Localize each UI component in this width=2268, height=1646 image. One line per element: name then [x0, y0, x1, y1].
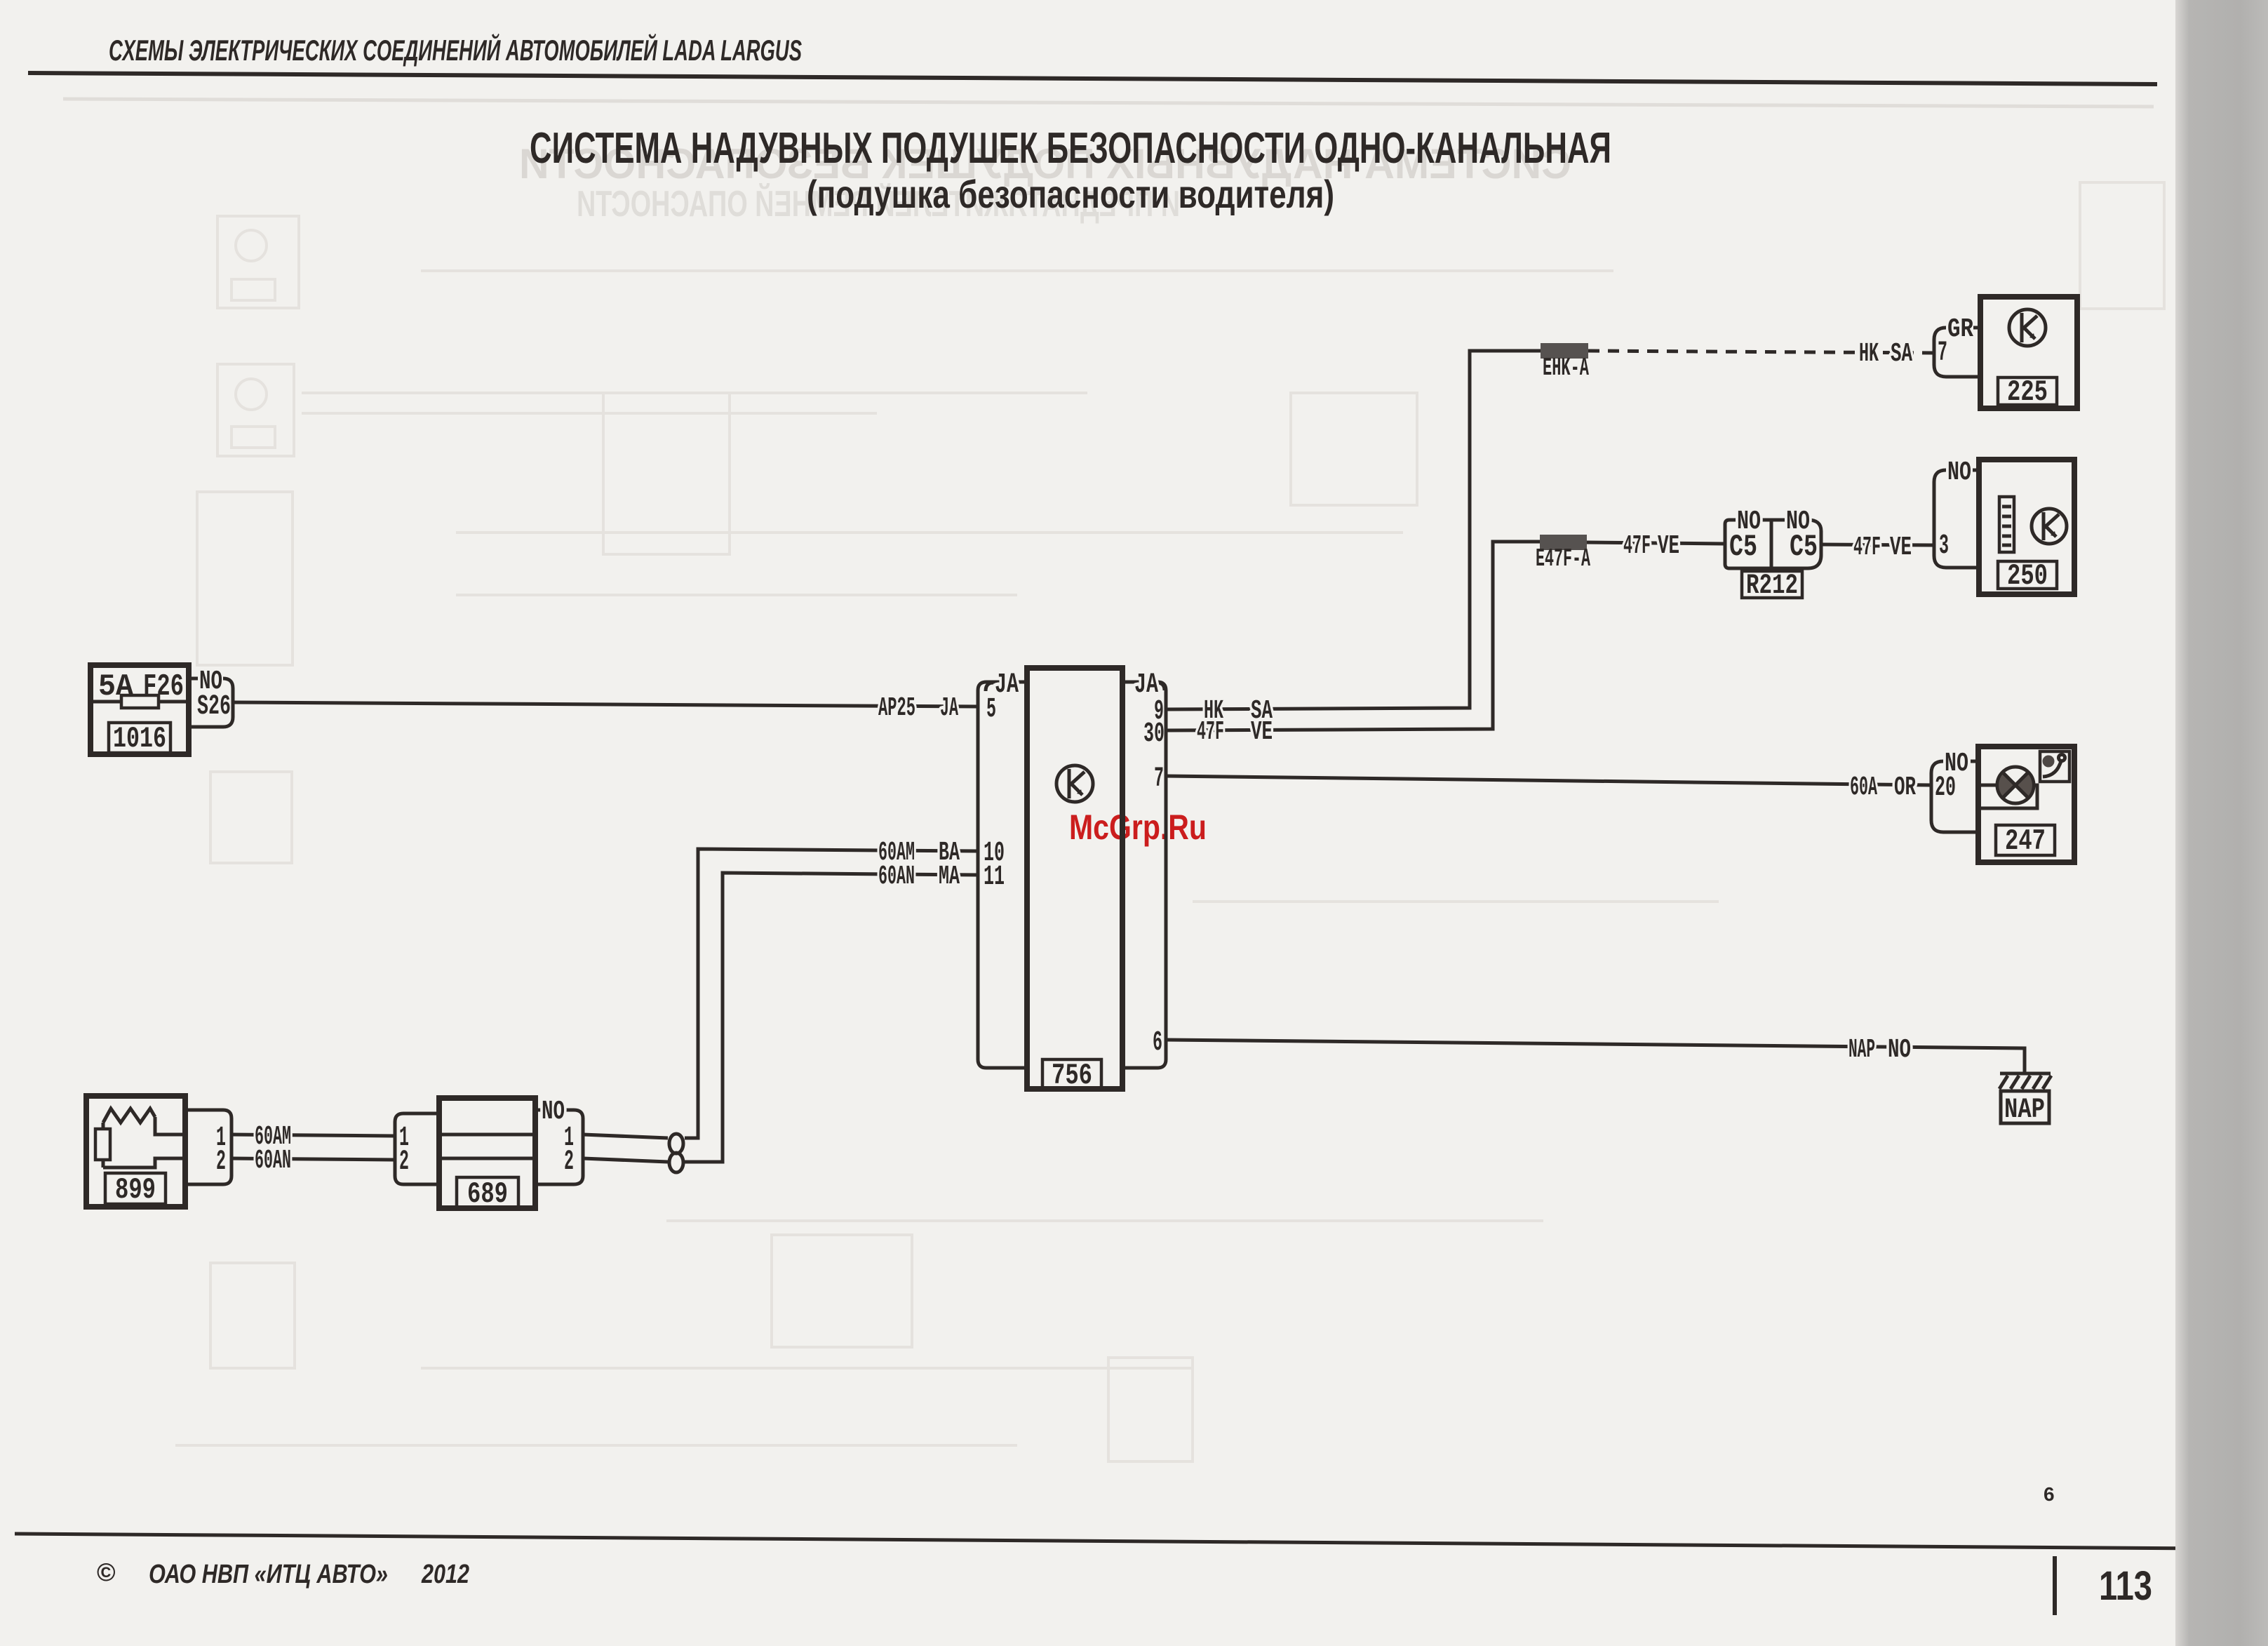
- svg-text:7: 7: [1938, 337, 1947, 369]
- svg-text:JA: JA: [995, 669, 1019, 701]
- svg-text:11: 11: [984, 862, 1005, 893]
- svg-text:S26: S26: [197, 691, 231, 723]
- svg-text:6: 6: [2044, 1483, 2055, 1505]
- svg-text:47F: 47F: [1853, 533, 1881, 563]
- svg-text:MA: MA: [939, 862, 960, 892]
- svg-text:E47F-A: E47F-A: [1536, 544, 1590, 573]
- svg-text:VE: VE: [1251, 717, 1273, 747]
- svg-text:3: 3: [1939, 530, 1949, 562]
- svg-text:(подушка безопасности водителя: (подушка безопасности водителя): [807, 172, 1334, 216]
- svg-text:McGrp.Ru: McGrp.Ru: [1069, 808, 1207, 847]
- svg-text:7: 7: [1154, 763, 1164, 795]
- svg-text:NO: NO: [1947, 457, 1971, 488]
- svg-text:JA: JA: [940, 693, 958, 723]
- svg-text:EHK-A: EHK-A: [1543, 354, 1589, 382]
- svg-text:VE: VE: [1658, 531, 1679, 561]
- svg-text:60A: 60A: [1850, 772, 1877, 803]
- svg-text:СХЕМЫ ЭЛЕКТРИЧЕСКИХ СОЕДИНЕНИЙ: СХЕМЫ ЭЛЕКТРИЧЕСКИХ СОЕДИНЕНИЙ АВТОМОБИЛ…: [109, 32, 802, 67]
- svg-text:SA: SA: [1891, 339, 1912, 369]
- svg-text:GR: GR: [1947, 314, 1973, 344]
- svg-text:OR: OR: [1894, 772, 1916, 803]
- svg-text:R212: R212: [1746, 570, 1798, 602]
- svg-text:47F: 47F: [1623, 531, 1651, 561]
- svg-text:NO: NO: [1888, 1035, 1911, 1065]
- svg-text:5A: 5A: [98, 669, 134, 704]
- svg-text:VE: VE: [1890, 533, 1912, 563]
- svg-text:СИСТЕМА НАДУВНЫХ ПОДУШЕК БЕЗОП: СИСТЕМА НАДУВНЫХ ПОДУШЕК БЕЗОПАСНОСТИ ОД…: [530, 124, 1611, 173]
- svg-text:C5: C5: [1790, 530, 1818, 565]
- svg-text:©: ©: [97, 1558, 116, 1586]
- svg-text:F26: F26: [143, 669, 184, 704]
- svg-text:2012: 2012: [421, 1560, 469, 1589]
- svg-text:5: 5: [986, 694, 996, 725]
- svg-text:247: 247: [2005, 824, 2046, 858]
- svg-text:2: 2: [399, 1146, 409, 1178]
- svg-text:60AN: 60AN: [878, 862, 915, 892]
- svg-text:60AN: 60AN: [255, 1146, 291, 1176]
- svg-text:C5: C5: [1729, 530, 1757, 565]
- svg-text:689: 689: [467, 1177, 508, 1211]
- svg-text:1016: 1016: [113, 722, 166, 756]
- svg-text:HK: HK: [1859, 339, 1879, 369]
- svg-text:NO: NO: [542, 1097, 565, 1127]
- svg-text:756: 756: [1052, 1059, 1092, 1092]
- svg-text:20: 20: [1935, 772, 1956, 804]
- svg-text:6: 6: [1153, 1027, 1162, 1059]
- svg-text:225: 225: [2007, 375, 2048, 409]
- svg-text:AP25: AP25: [878, 693, 915, 723]
- svg-text:2: 2: [216, 1146, 226, 1178]
- svg-text:47F: 47F: [1197, 717, 1224, 747]
- svg-text:30: 30: [1143, 718, 1165, 750]
- svg-text:2: 2: [564, 1146, 574, 1178]
- svg-text:899: 899: [115, 1173, 156, 1207]
- svg-text:NAP: NAP: [1848, 1035, 1875, 1065]
- svg-text:113: 113: [2099, 1563, 2152, 1609]
- svg-text:ОАО НВП «ИТЦ АВТО»: ОАО НВП «ИТЦ АВТО»: [149, 1560, 388, 1589]
- svg-text:250: 250: [2007, 559, 2048, 593]
- svg-text:NAP: NAP: [2004, 1095, 2045, 1126]
